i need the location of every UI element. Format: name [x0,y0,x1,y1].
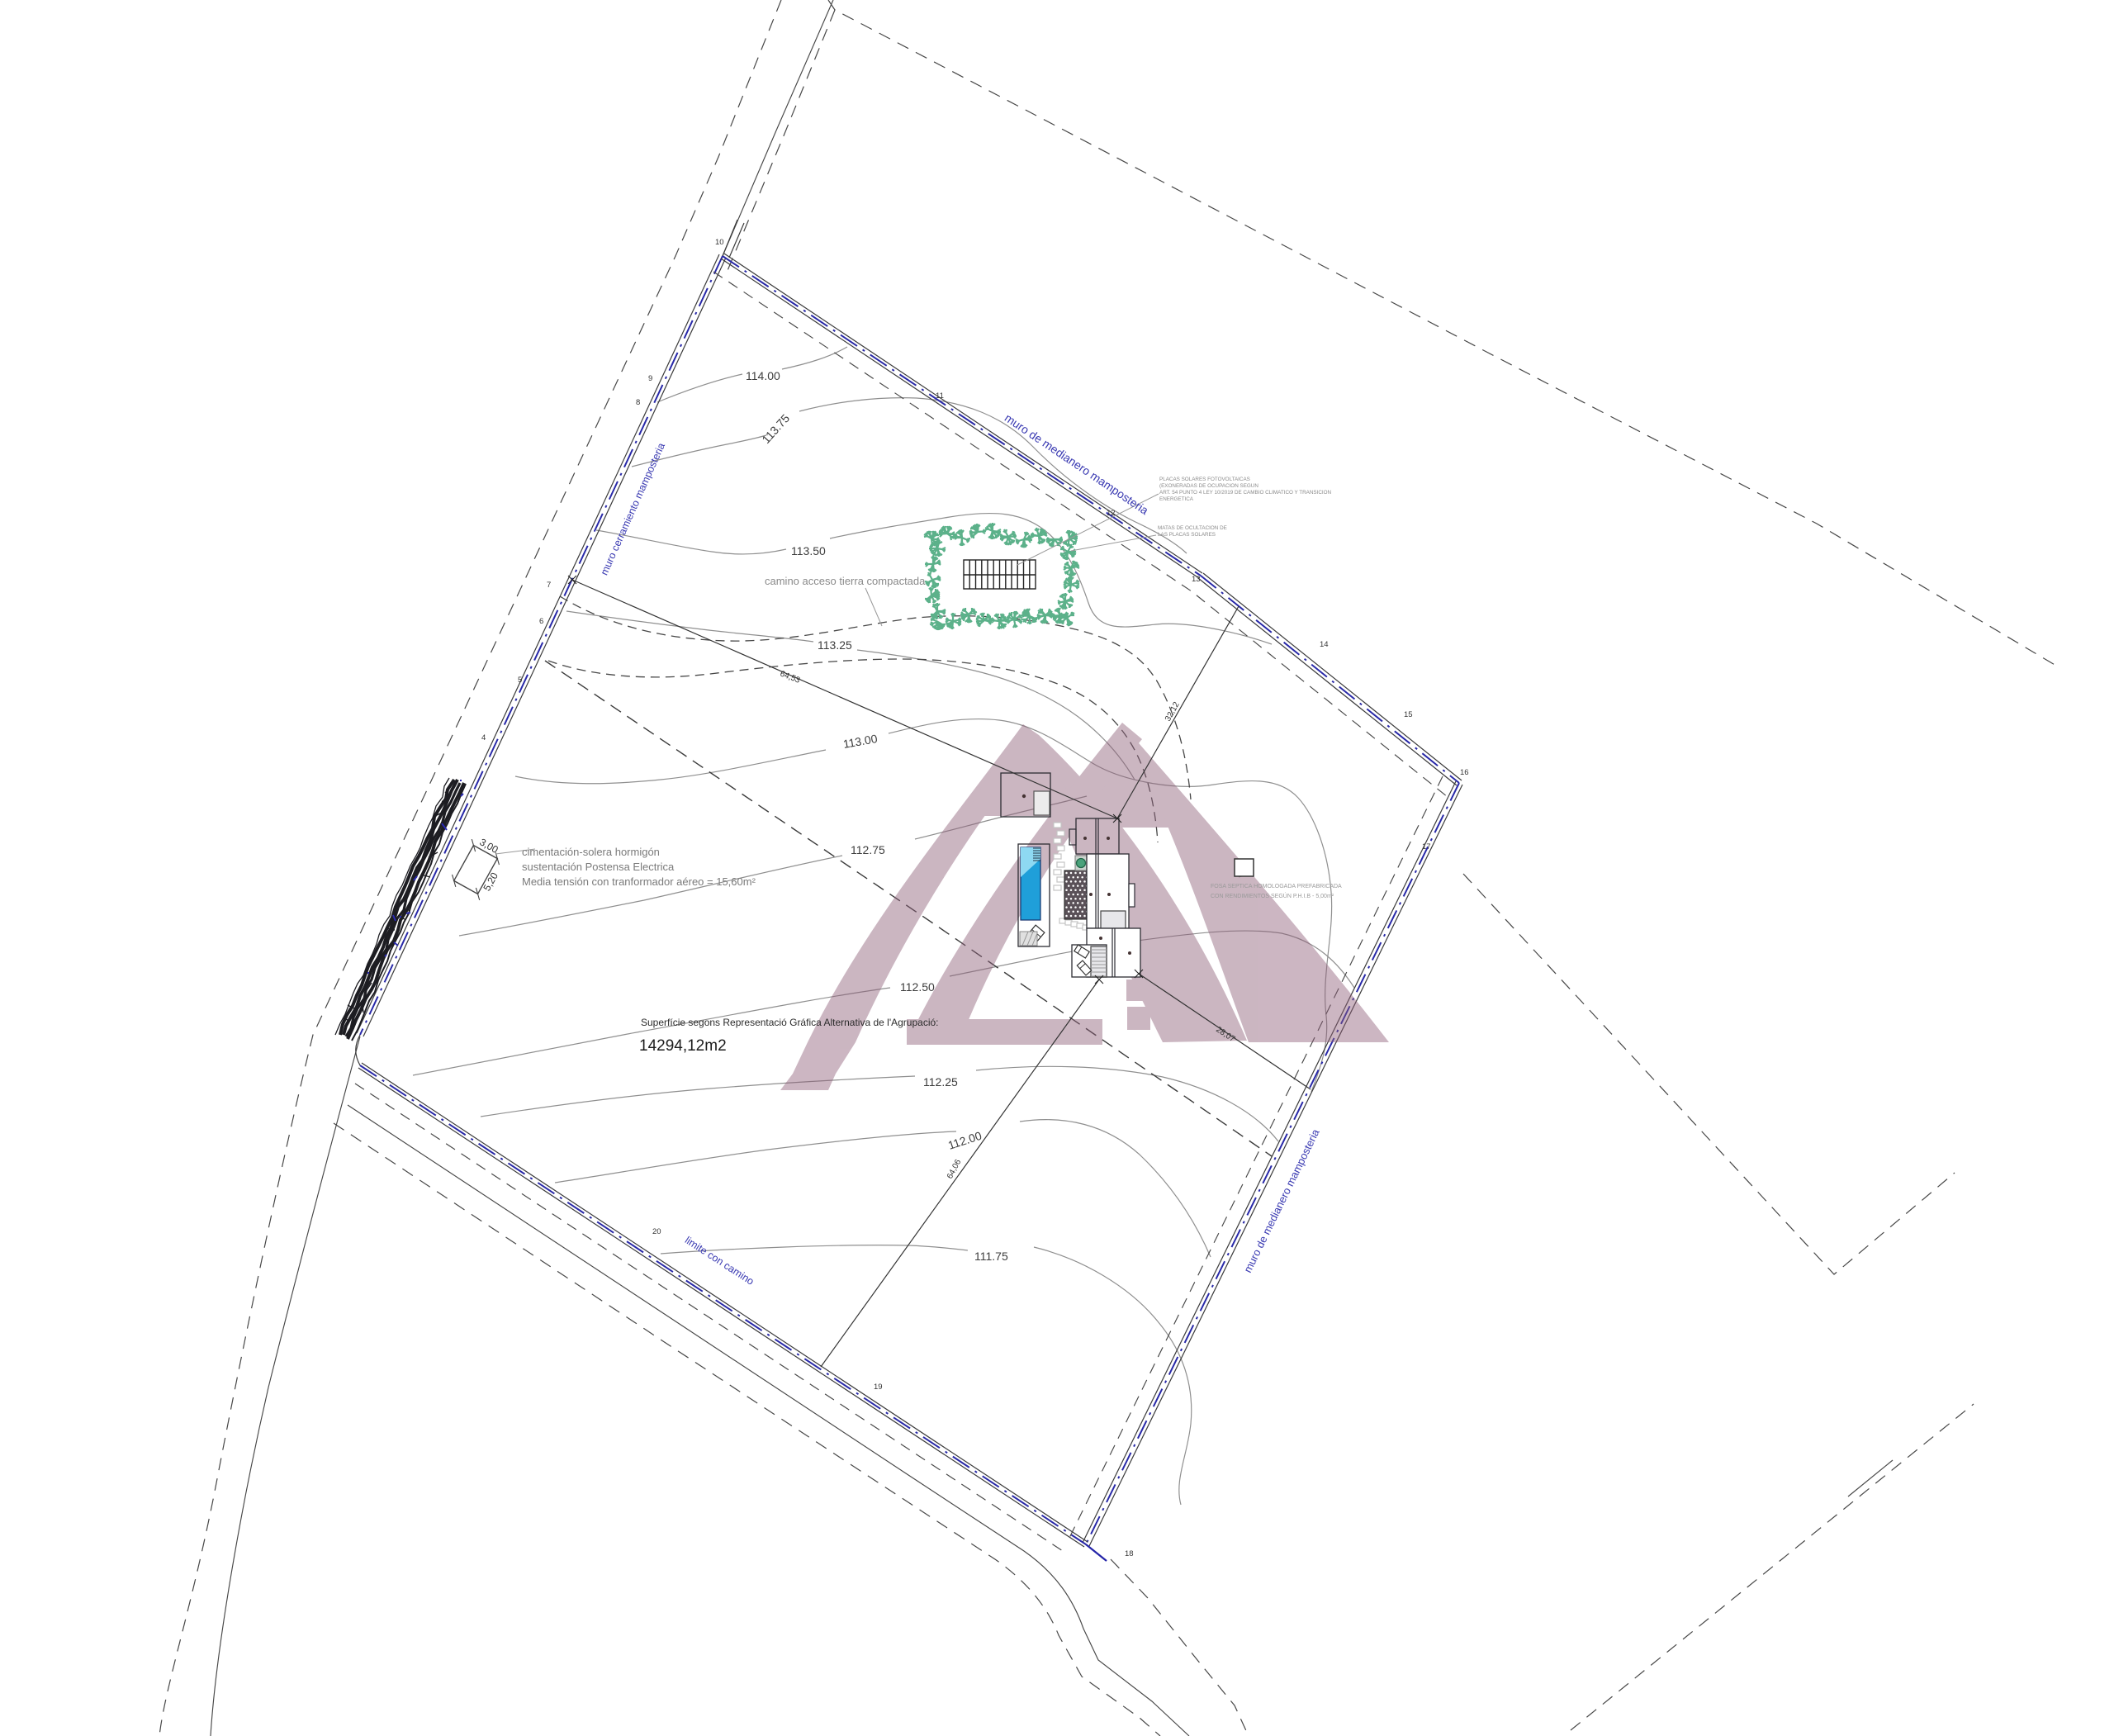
svg-text:7: 7 [547,581,551,590]
svg-text:16: 16 [1460,768,1469,777]
svg-text:PLACAS SOLARES FOTOVOLTAICAS: PLACAS SOLARES FOTOVOLTAICAS [1159,477,1250,482]
svg-text:ART. 54 PUNTO 4 LEY 10/2019 DE: ART. 54 PUNTO 4 LEY 10/2019 DE CAMBIO CL… [1159,490,1332,496]
svg-text:Media tensión con tranformador: Media tensión con tranformador aéreo = 1… [522,875,756,888]
svg-text:17: 17 [1422,842,1431,851]
svg-text:20: 20 [652,1227,661,1236]
svg-text:112.25: 112.25 [923,1075,958,1089]
svg-text:MATAS DE OCULTACION DE: MATAS DE OCULTACION DE [1158,525,1227,531]
svg-text:9: 9 [648,374,652,383]
svg-text:14294,12m2: 14294,12m2 [639,1037,727,1055]
svg-text:12: 12 [1107,509,1116,518]
svg-text:cimentación-solera hormigón: cimentación-solera hormigón [522,846,660,858]
svg-text:sustentación Postensa Electric: sustentación Postensa Electrica [522,861,675,873]
svg-text:LAS PLACAS SOLARES: LAS PLACAS SOLARES [1158,532,1216,538]
svg-text:114.00: 114.00 [746,369,780,382]
svg-text:8: 8 [636,398,640,407]
svg-text:112.75: 112.75 [851,843,885,856]
svg-text:ENERGETICA: ENERGETICA [1159,496,1194,502]
svg-text:FOSA SEPTICA HOMOLOGADA PREFAB: FOSA SEPTICA HOMOLOGADA PREFABRICADA [1211,884,1342,889]
svg-text:111.75: 111.75 [974,1250,1008,1263]
svg-text:5: 5 [518,676,522,685]
svg-text:112.50: 112.50 [900,980,935,994]
svg-text:113.50: 113.50 [791,544,826,557]
svg-text:6: 6 [539,617,543,626]
svg-text:15: 15 [1404,710,1413,719]
svg-text:11: 11 [936,391,944,401]
svg-text:19: 19 [874,1383,883,1392]
svg-text:Superfície segons Representaci: Superfície segons Representació Gráfica … [641,1017,939,1028]
svg-text:18: 18 [1125,1549,1134,1558]
svg-text:camino acceso tierra compactad: camino acceso tierra compactada [765,575,926,587]
svg-text:13: 13 [1192,575,1201,584]
svg-text:(EXONERADAS DE OCUPACION SEGUN: (EXONERADAS DE OCUPACION SEGUN [1159,483,1258,489]
svg-text:CON RENDIMIENTOS SEGÚN P.H.I.B: CON RENDIMIENTOS SEGÚN P.H.I.B - 5,00m² [1211,892,1334,899]
svg-text:14: 14 [1320,640,1329,649]
svg-text:10: 10 [715,238,724,247]
svg-text:4: 4 [481,733,486,742]
svg-text:113.25: 113.25 [818,638,852,652]
